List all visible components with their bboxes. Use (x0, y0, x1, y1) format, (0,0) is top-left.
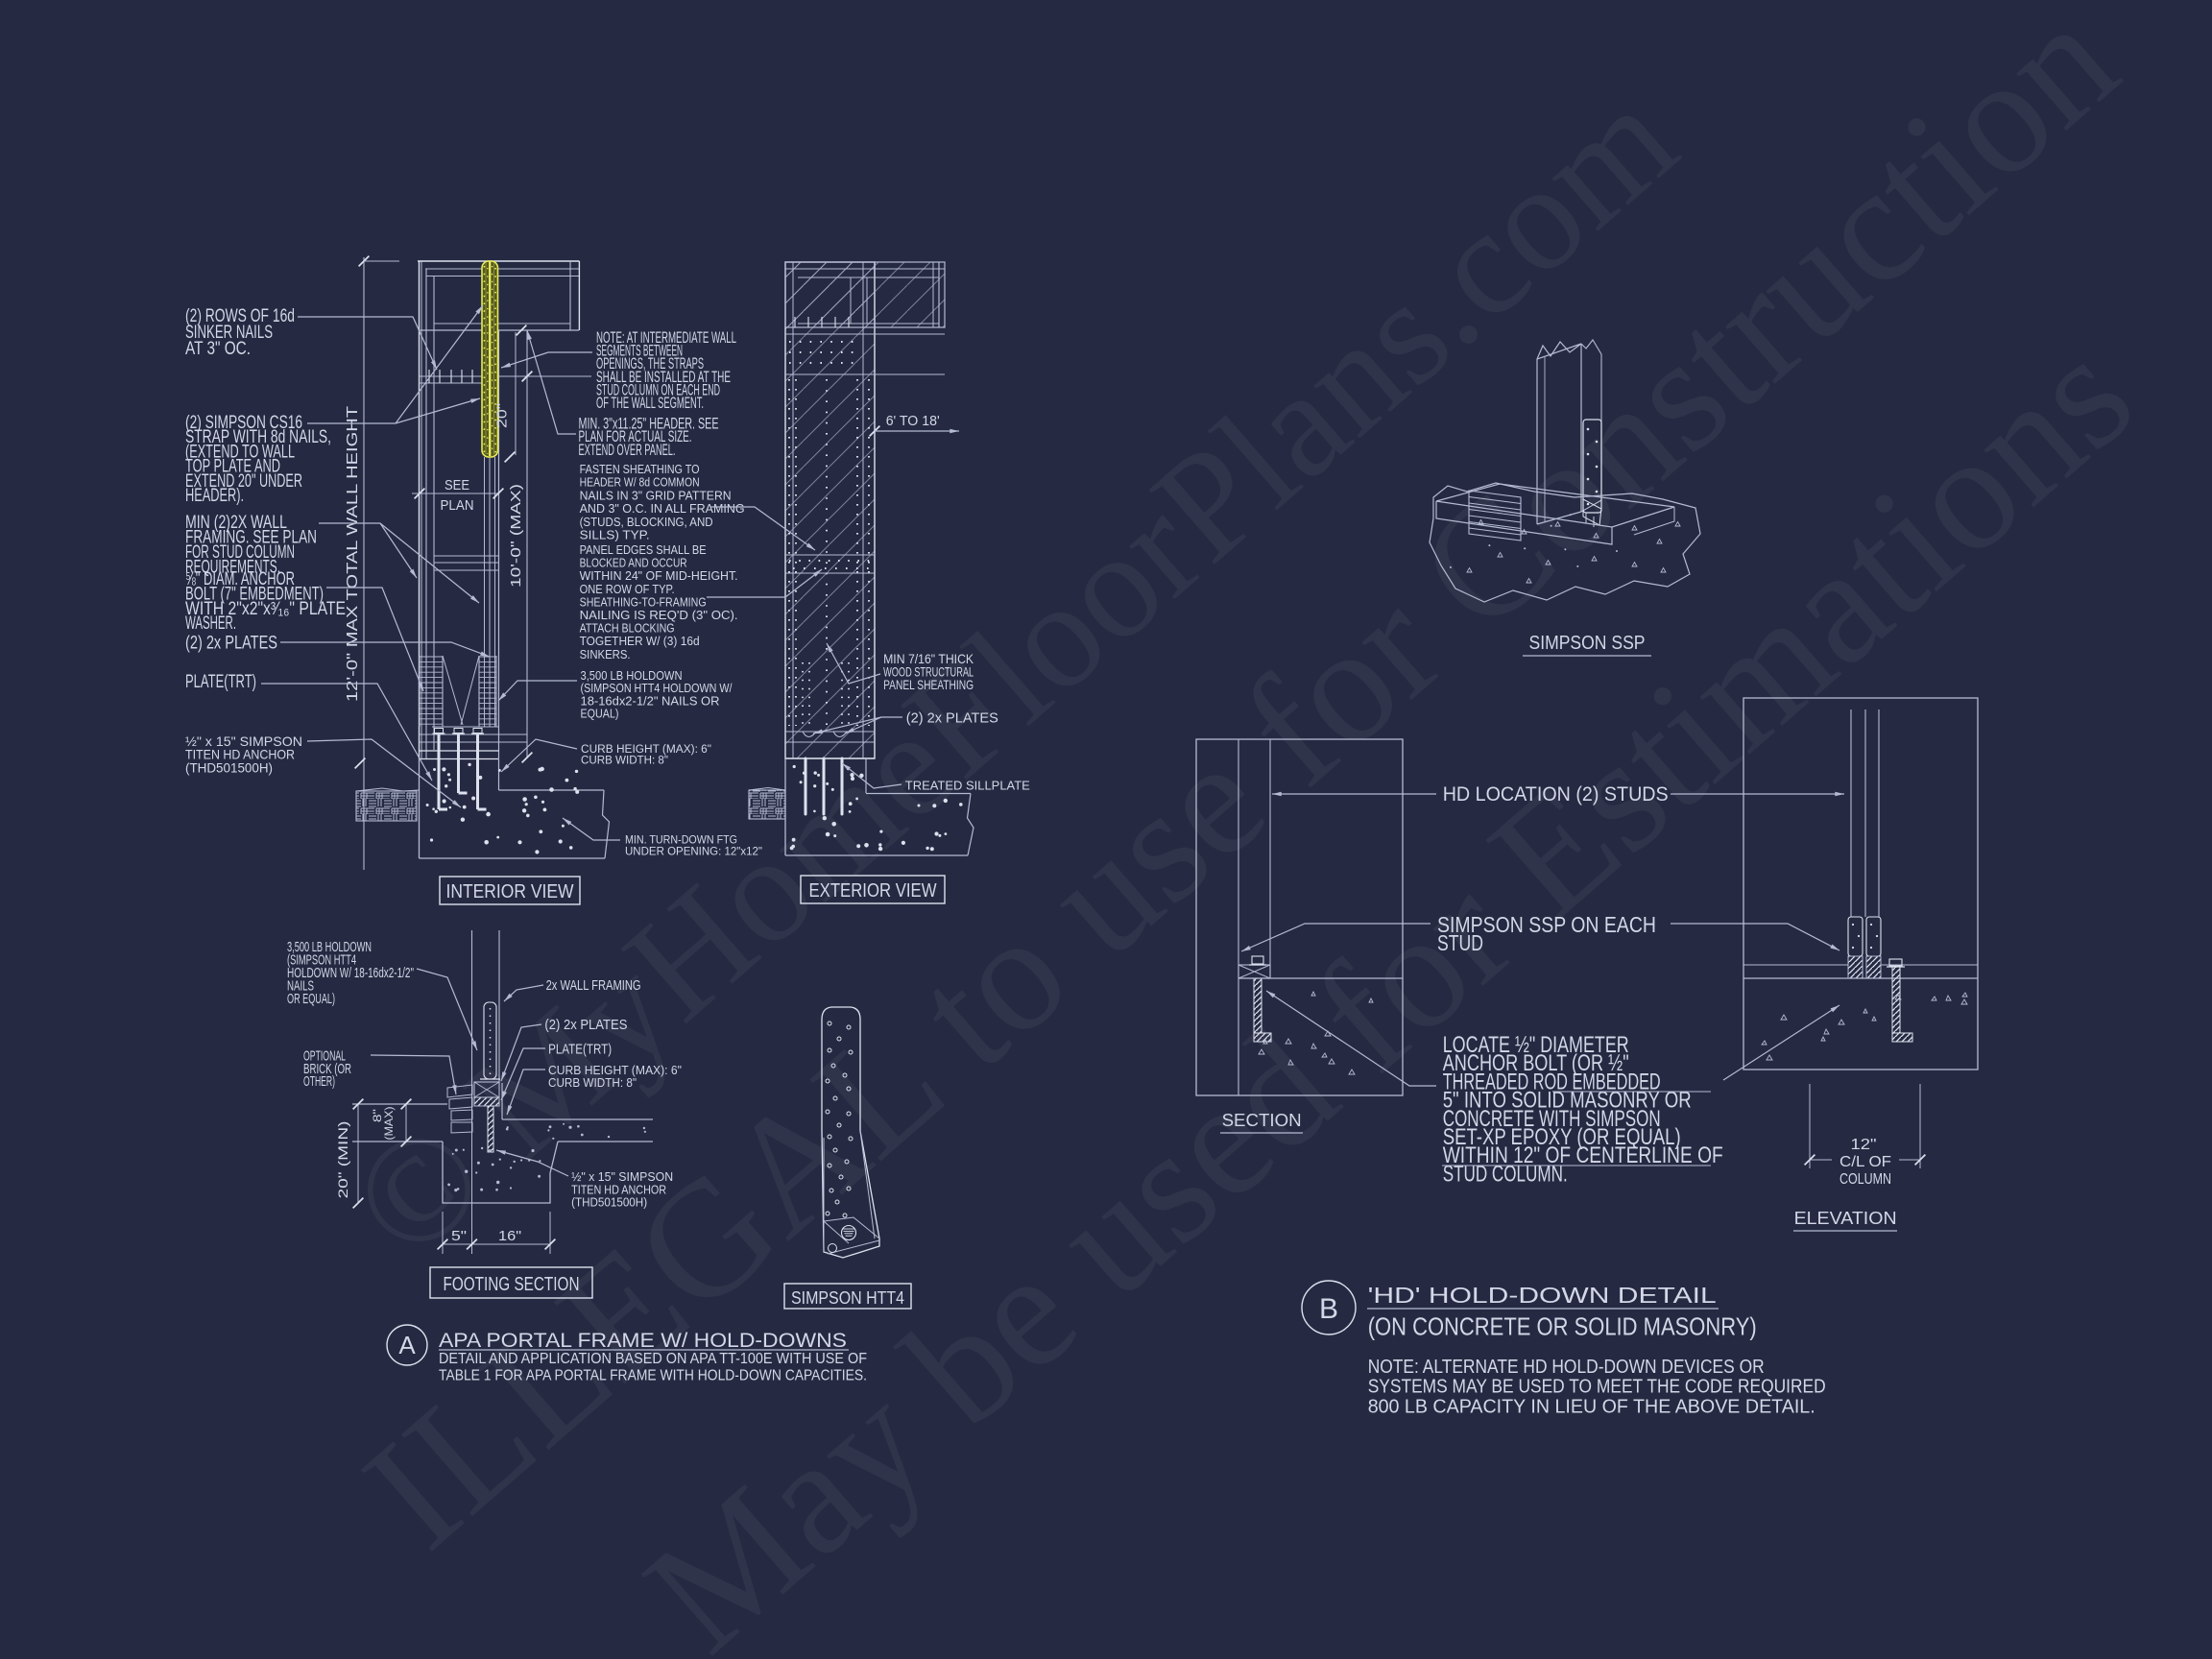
svg-text:COLUMN: COLUMN (1839, 1171, 1891, 1188)
svg-text:SIMPSON SSP: SIMPSON SSP (1529, 633, 1646, 654)
svg-text:(2) 2x PLATES: (2) 2x PLATES (185, 633, 277, 653)
svg-text:B: B (1319, 1293, 1338, 1325)
svg-text:EXTERIOR VIEW: EXTERIOR VIEW (809, 880, 937, 902)
svg-text:SEE: SEE (445, 477, 469, 493)
svg-text:(ON CONCRETE OR SOLID MASONRY): (ON CONCRETE OR SOLID MASONRY) (1368, 1312, 1757, 1341)
svg-text:A: A (398, 1331, 416, 1359)
svg-text:NOTE: ALTERNATE HD HOLD-DOWN D: NOTE: ALTERNATE HD HOLD-DOWN DEVICES OR (1368, 1357, 1765, 1378)
svg-text:SINKERS.: SINKERS. (580, 647, 631, 661)
svg-text:20": 20" (494, 403, 511, 428)
svg-text:PLATE(TRT): PLATE(TRT) (185, 672, 256, 692)
svg-text:CURB WIDTH: 8": CURB WIDTH: 8" (548, 1075, 637, 1090)
svg-text:FOOTING SECTION: FOOTING SECTION (444, 1274, 580, 1295)
svg-text:DETAIL AND APPLICATION BASED O: DETAIL AND APPLICATION BASED ON APA TT-1… (439, 1351, 867, 1367)
svg-text:(THD501500H): (THD501500H) (571, 1195, 647, 1210)
svg-text:(2) 2x PLATES: (2) 2x PLATES (906, 710, 998, 727)
svg-text:PANEL SHEATHING: PANEL SHEATHING (883, 677, 974, 692)
svg-text:'HD' HOLD-DOWN DETAIL: 'HD' HOLD-DOWN DETAIL (1368, 1283, 1717, 1308)
svg-text:ELEVATION: ELEVATION (1794, 1209, 1897, 1228)
svg-text:(MAX): (MAX) (382, 1107, 396, 1141)
svg-text:SILLS) TYP.: SILLS) TYP. (580, 528, 650, 542)
svg-text:EQUAL): EQUAL) (581, 707, 619, 721)
svg-text:12'-0" MAX TOTAL WALL HEIGHT: 12'-0" MAX TOTAL WALL HEIGHT (345, 406, 361, 702)
svg-text:CURB HEIGHT (MAX): 6": CURB HEIGHT (MAX): 6" (581, 744, 711, 756)
svg-text:STUD COLUMN.: STUD COLUMN. (1443, 1161, 1568, 1187)
svg-text:2x WALL FRAMING: 2x WALL FRAMING (546, 977, 641, 994)
svg-text:C/L OF: C/L OF (1839, 1154, 1891, 1170)
svg-text:PLATE(TRT): PLATE(TRT) (548, 1041, 612, 1057)
svg-text:10'-0" (MAX): 10'-0" (MAX) (508, 484, 524, 588)
svg-text:UNDER OPENING: 12"x12": UNDER OPENING: 12"x12" (625, 846, 762, 857)
svg-text:SYSTEMS MAY BE USED TO MEET TH: SYSTEMS MAY BE USED TO MEET THE CODE REQ… (1368, 1377, 1826, 1398)
svg-text:16": 16" (498, 1228, 521, 1244)
svg-text:HEADER).: HEADER). (185, 486, 244, 506)
svg-text:STUD: STUD (1437, 930, 1483, 955)
svg-text:SIMPSON HTT4: SIMPSON HTT4 (791, 1288, 904, 1308)
svg-text:(2) 2x PLATES: (2) 2x PLATES (544, 1017, 627, 1033)
svg-text:SECTION: SECTION (1222, 1111, 1302, 1130)
svg-text:5": 5" (451, 1228, 467, 1244)
svg-text:PLAN: PLAN (441, 497, 474, 514)
svg-text:OTHER): OTHER) (303, 1073, 335, 1090)
svg-text:OR EQUAL): OR EQUAL) (287, 991, 335, 1007)
svg-text:12": 12" (1851, 1137, 1877, 1153)
svg-text:TABLE 1 FOR APA PORTAL FRAME W: TABLE 1 FOR APA PORTAL FRAME WITH HOLD-D… (439, 1368, 867, 1384)
svg-text:EXTEND OVER PANEL.: EXTEND OVER PANEL. (579, 442, 676, 459)
svg-text:APA PORTAL FRAME W/ HOLD-DOWNS: APA PORTAL FRAME W/ HOLD-DOWNS (439, 1329, 847, 1352)
svg-text:CURB WIDTH: 8": CURB WIDTH: 8" (581, 756, 668, 767)
svg-text:MIN. TURN-DOWN FTG: MIN. TURN-DOWN FTG (625, 835, 737, 847)
svg-text:WASHER.: WASHER. (185, 613, 236, 634)
svg-text:TREATED SILLPLATE: TREATED SILLPLATE (905, 778, 1030, 792)
svg-text:AT 3" OC.: AT 3" OC. (185, 339, 251, 359)
svg-text:800 LB CAPACITY IN LIEU OF THE: 800 LB CAPACITY IN LIEU OF THE ABOVE DET… (1368, 1396, 1815, 1417)
svg-text:6' TO 18': 6' TO 18' (886, 413, 940, 429)
svg-text:INTERIOR VIEW: INTERIOR VIEW (446, 881, 574, 902)
svg-text:(THD501500H): (THD501500H) (185, 759, 273, 775)
svg-text:HD LOCATION (2) STUDS: HD LOCATION (2) STUDS (1443, 783, 1669, 805)
svg-text:20" (MIN): 20" (MIN) (335, 1121, 350, 1199)
svg-text:OF THE WALL SEGMENT.: OF THE WALL SEGMENT. (596, 395, 704, 412)
